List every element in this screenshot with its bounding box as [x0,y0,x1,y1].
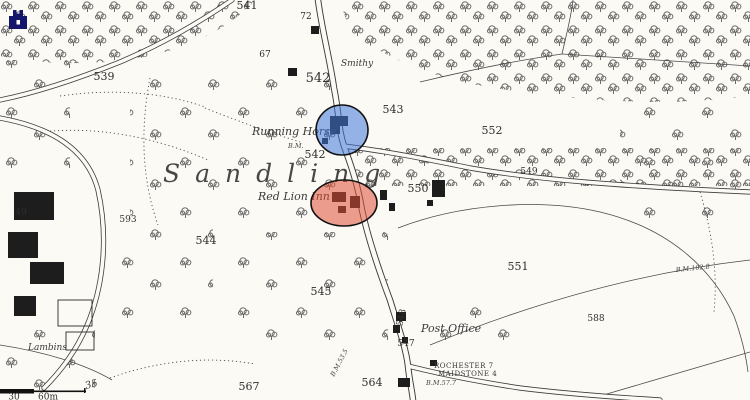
parcel-label-593: 593 [119,215,136,225]
post-office-label: Post Office [420,322,482,335]
building [389,203,395,211]
building [311,26,319,34]
parcel-label-67: 67 [259,50,271,60]
parcel-label-542-mid: 542 [305,148,326,161]
parcel-label-544: 544 [196,234,217,247]
benchmark-milestone: B.M.57.7 [425,379,457,387]
parcel-label-548: 548 [395,308,408,327]
building [427,200,433,206]
field-house-label: Lambins [27,343,67,353]
building-manor [14,296,36,316]
blue-highlight-oval[interactable] [316,105,368,155]
scale-bar-right-label: 60m [38,393,58,400]
historic-map-canvas: Sandling 541 539 542 542 543 552 550 549… [0,0,750,400]
building [380,190,387,200]
parcel-label-551: 551 [508,260,529,273]
parcel-label-552: 552 [482,124,503,137]
milestone-rochester-label: ROCHESTER 7 [434,362,494,370]
parcel-label-545: 545 [311,285,332,298]
parcel-label-543: 543 [383,103,404,116]
parcel-label-539: 539 [94,70,115,83]
parcel-label-72: 72 [300,12,311,22]
parcel-label-588: 588 [587,314,604,324]
parcel-label-564: 564 [362,376,383,389]
contour-label: 35 [84,378,99,392]
building-manor [30,262,64,284]
parcel-label-541: 541 [237,0,258,12]
parcel-label-547: 547 [397,339,414,349]
map-viewport[interactable]: Sandling 541 539 542 542 543 552 550 549… [0,0,750,400]
parcel-label-542-top: 542 [306,71,331,86]
scale-bar-left-label: 30 [8,393,20,400]
scale-bar-tick [84,388,86,393]
castle-icon [6,7,30,31]
parcel-label-550: 550 [408,182,429,195]
parcel-label-49: 49 [15,208,27,218]
building-manor [8,232,38,258]
building [398,378,410,387]
red-highlight-oval[interactable] [311,180,377,226]
benchmark-south: B.M.53.5 [328,348,350,379]
building [432,180,445,197]
parcel-label-567: 567 [239,380,260,393]
smithy-label: Smithy [341,59,374,69]
home-marker-icon[interactable] [6,7,30,31]
milestone-maidstone-label: MAIDSTONE 4 [438,370,497,378]
building [288,68,297,76]
benchmark-east: B.M.102.8 [674,262,710,274]
parcel-label-549: 549 [520,167,537,177]
benchmark-road: B.M. [287,142,304,150]
